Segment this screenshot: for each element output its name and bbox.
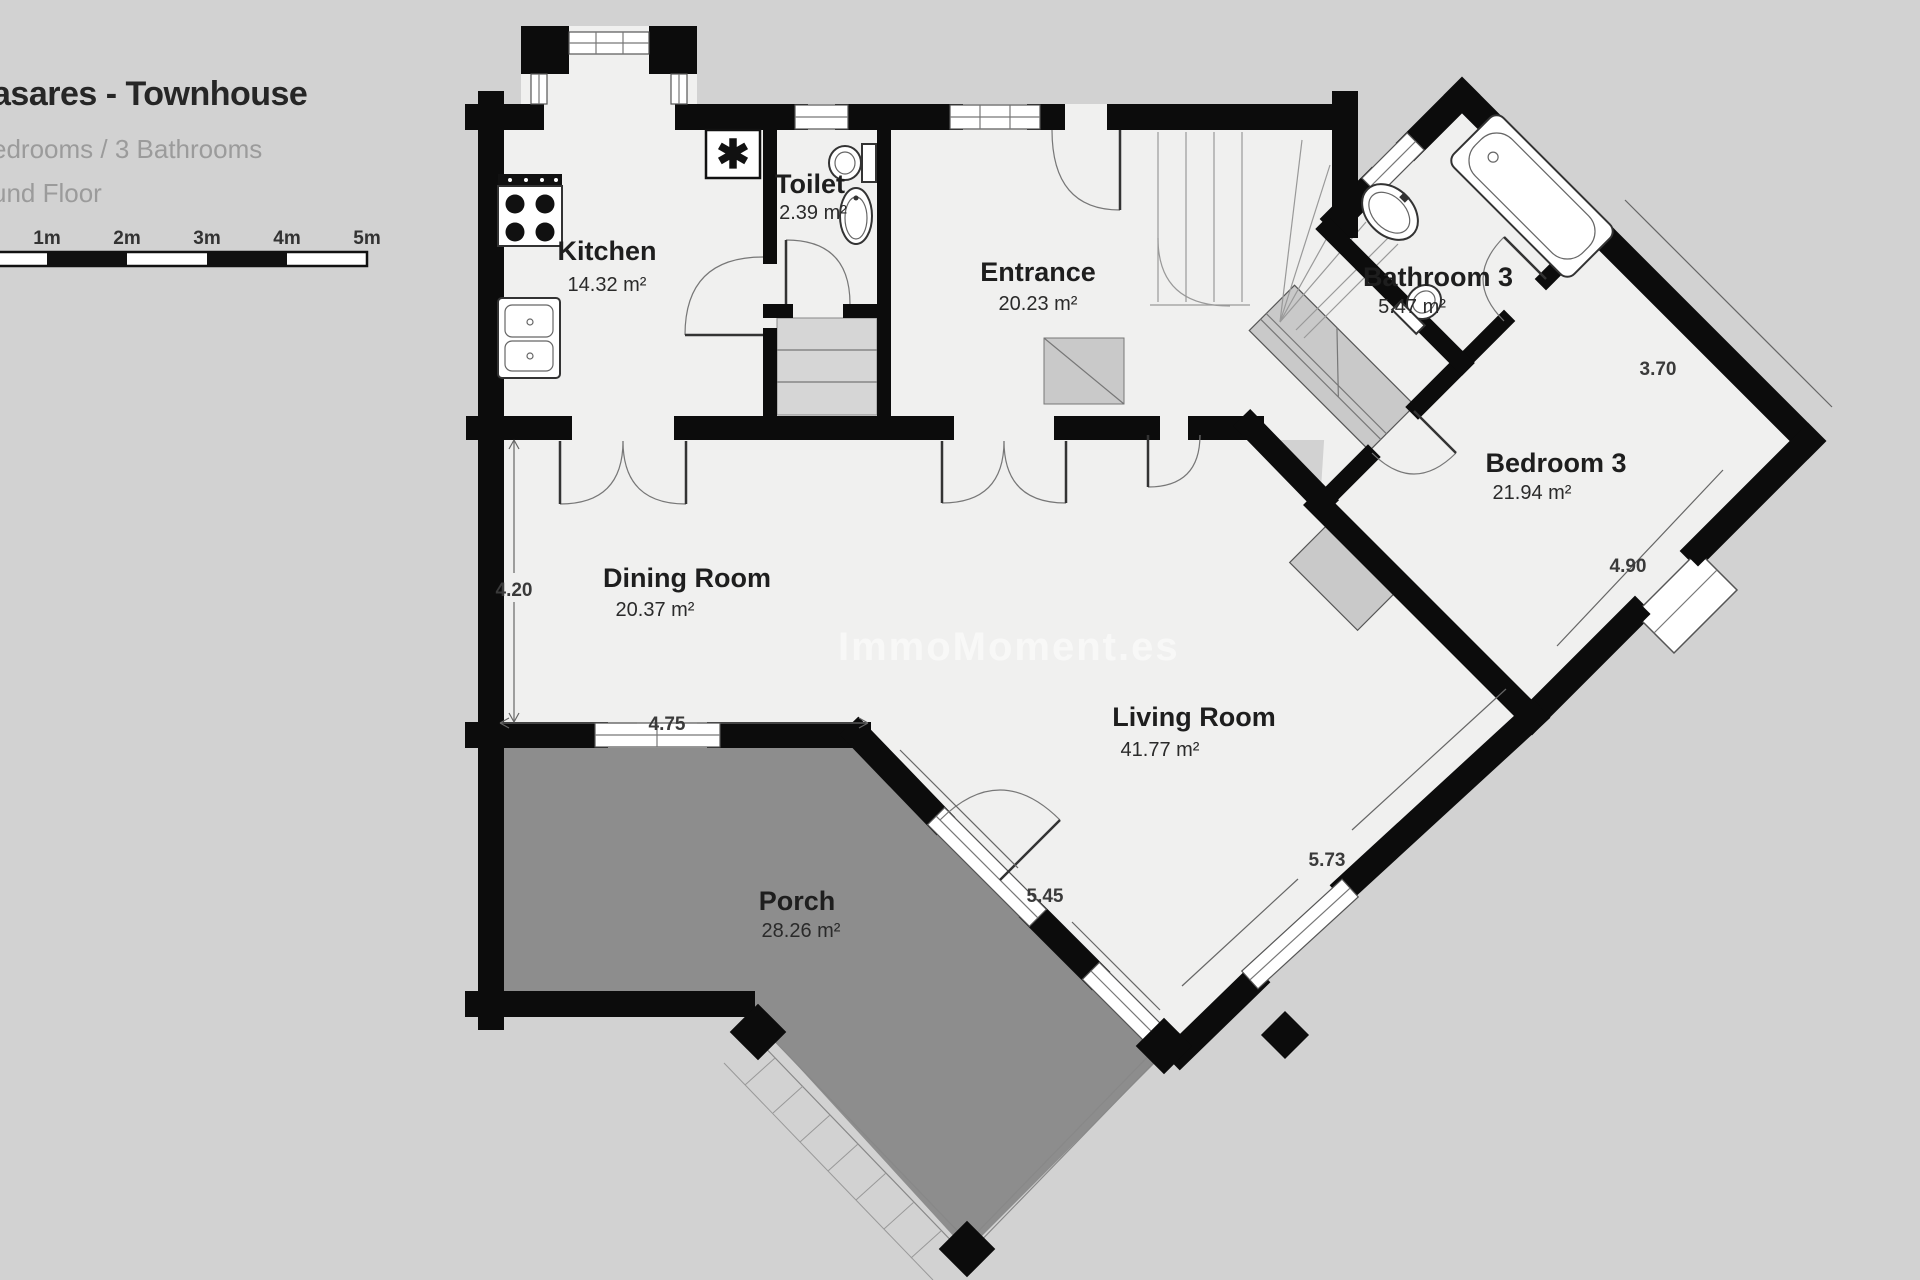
dim-bedroom-side: 4.90 — [1610, 556, 1647, 577]
scale-4m: 4m — [273, 228, 300, 249]
vestibule-storage — [777, 318, 877, 415]
floor-plan-page: ✱ — [0, 0, 1920, 1280]
scale-2m: 2m — [113, 228, 140, 249]
toilet-area: 2.39 m² — [779, 202, 847, 224]
scale-bar-segment — [47, 252, 127, 266]
bathroom3-name: Bathroom 3 — [1363, 262, 1513, 292]
entrance-window — [950, 105, 1040, 129]
page-title: asares - Townhouse — [0, 75, 307, 113]
bathroom3-area: 5.47 m² — [1378, 296, 1446, 318]
floor-label: und Floor — [0, 178, 102, 208]
page-subtitle: edrooms / 3 Bathrooms — [0, 134, 262, 164]
scale-1m: 1m — [33, 228, 60, 249]
living-name: Living Room — [1112, 702, 1276, 732]
toilet-window — [795, 105, 848, 129]
floor-plan-drawing: ✱ — [0, 0, 1920, 1280]
floor-main — [478, 104, 1345, 434]
hall-storage — [1044, 338, 1124, 404]
kitchen-area: 14.32 m² — [568, 274, 647, 296]
entrance-area: 20.23 m² — [999, 293, 1078, 315]
porch-area: 28.26 m² — [762, 920, 841, 942]
kitchen-name: Kitchen — [557, 236, 656, 266]
bedroom3-name: Bedroom 3 — [1485, 448, 1626, 478]
stove-icon — [498, 174, 562, 246]
dining-area: 20.37 m² — [616, 599, 695, 621]
porch-name: Porch — [759, 886, 836, 916]
toilet-label: Toilet 2.39 m² — [775, 169, 847, 224]
boiler-symbol: ✱ — [716, 133, 750, 177]
toilet-name: Toilet — [775, 169, 845, 199]
dining-name: Dining Room — [603, 563, 771, 593]
entrance-name: Entrance — [980, 257, 1096, 287]
scale-5m: 5m — [353, 228, 380, 249]
scale-bar-segment — [207, 252, 287, 266]
living-area: 41.77 m² — [1121, 739, 1200, 761]
bedroom3-area: 21.94 m² — [1493, 482, 1572, 504]
dim-living-porch: 5.45 — [1027, 886, 1064, 907]
dim-dining-height: 4.20 — [496, 580, 533, 601]
dim-bedroom-top: 3.70 — [1640, 359, 1677, 380]
dim-dining-width: 4.75 — [649, 714, 686, 735]
porch-label: Porch 28.26 m² — [759, 886, 841, 942]
scale-3m: 3m — [193, 228, 220, 249]
dim-living-right: 5.73 — [1309, 850, 1346, 871]
kitchen-sink-icon — [498, 298, 560, 378]
bay-top-window — [569, 32, 649, 54]
bay-right-window — [671, 74, 687, 104]
watermark: ImmoMoment.es — [838, 625, 1180, 669]
boiler-icon: ✱ — [706, 130, 760, 178]
bay-left-window — [531, 74, 547, 104]
